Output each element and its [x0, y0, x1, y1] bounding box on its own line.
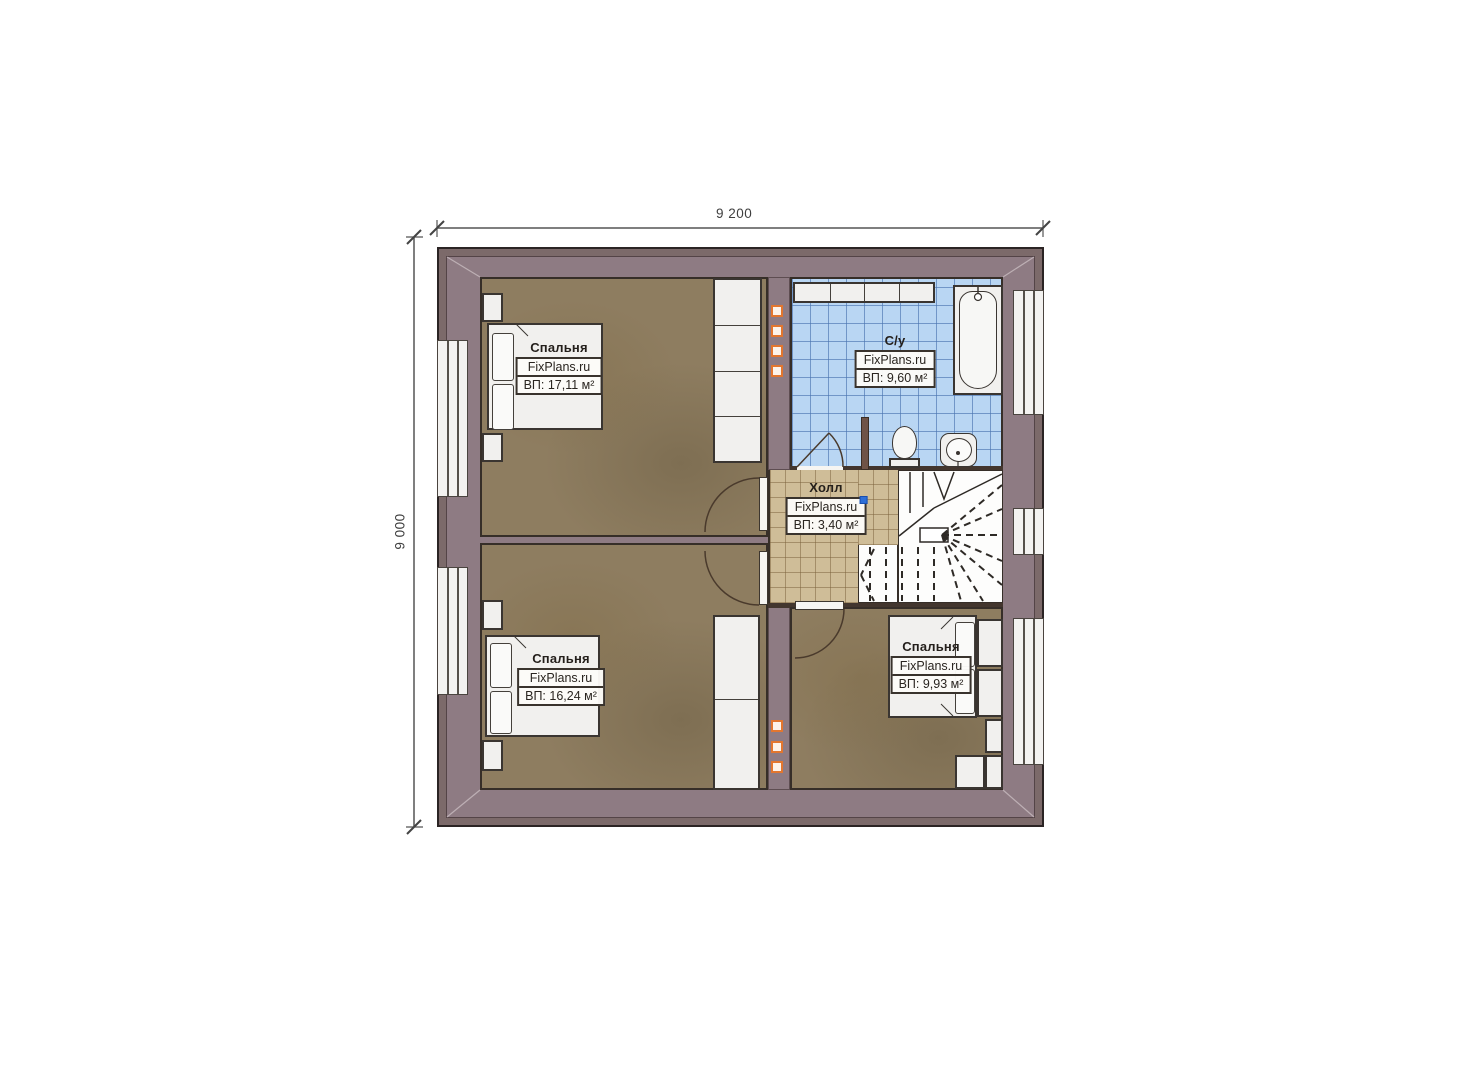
room-brand: FixPlans.ru — [788, 499, 865, 515]
room-area: ВП: 16,24 м² — [519, 686, 603, 704]
room-brand: FixPlans.ru — [893, 658, 970, 674]
room-area: ВП: 9,93 м² — [893, 674, 970, 692]
room-name: Спальня — [532, 651, 590, 666]
label-bedroom-top-left: Спальня FixPlans.ru ВП: 17,11 м² — [516, 340, 603, 395]
floor-plan-canvas: 9 200 9 000 — [0, 0, 1473, 1080]
room-name: Холл — [809, 480, 842, 495]
dimension-width-label: 9 200 — [716, 206, 752, 221]
floor-plan: Спальня FixPlans.ru ВП: 17,11 м² С/у Fix… — [437, 247, 1044, 827]
dimension-height-label: 9 000 — [393, 513, 408, 549]
room-name: Спальня — [530, 340, 588, 355]
room-area: ВП: 3,40 м² — [788, 515, 865, 533]
label-hall: Холл FixPlans.ru ВП: 3,40 м² — [786, 480, 867, 535]
room-brand: FixPlans.ru — [857, 352, 934, 368]
room-brand: FixPlans.ru — [519, 670, 603, 686]
plan-linework — [437, 247, 1044, 827]
label-bathroom: С/у FixPlans.ru ВП: 9,60 м² — [855, 333, 936, 388]
label-bedroom-bottom-right: Спальня FixPlans.ru ВП: 9,93 м² — [891, 639, 972, 694]
room-area: ВП: 17,11 м² — [518, 375, 601, 393]
map-marker — [859, 496, 867, 504]
room-name: С/у — [885, 333, 906, 348]
room-brand: FixPlans.ru — [518, 359, 601, 375]
room-name: Спальня — [902, 639, 960, 654]
room-area: ВП: 9,60 м² — [857, 368, 934, 386]
label-bedroom-bottom-left: Спальня FixPlans.ru ВП: 16,24 м² — [517, 651, 605, 706]
